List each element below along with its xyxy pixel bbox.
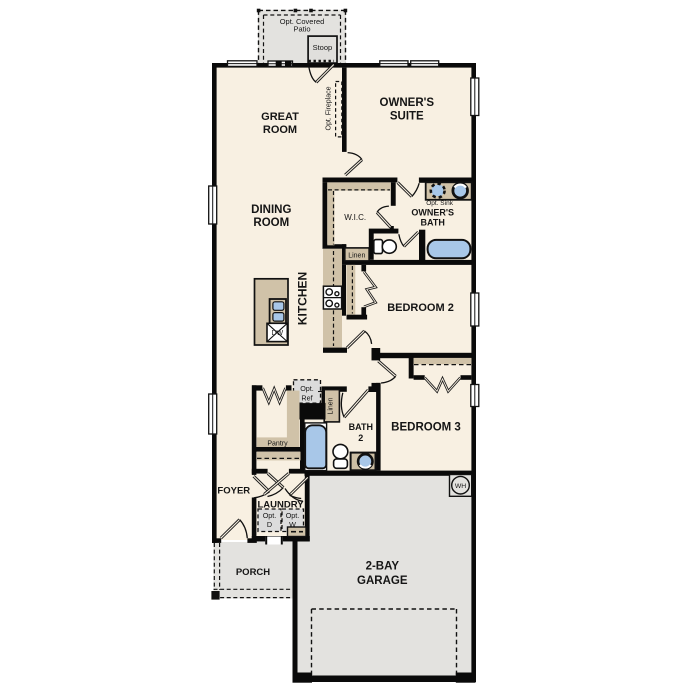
svg-text:Opt.: Opt. [263, 511, 277, 520]
svg-text:W.I.C.: W.I.C. [344, 213, 366, 222]
svg-text:D: D [267, 520, 272, 529]
svg-text:BATH: BATH [349, 422, 373, 432]
svg-text:OWNER'S: OWNER'S [411, 208, 454, 218]
svg-text:Opt. Fireplace: Opt. Fireplace [326, 86, 333, 130]
svg-text:GREAT: GREAT [261, 111, 299, 123]
svg-text:Linen: Linen [328, 397, 335, 414]
svg-text:2: 2 [358, 433, 363, 443]
svg-text:OWNER'S: OWNER'S [380, 97, 435, 109]
svg-text:Ref: Ref [301, 393, 312, 402]
svg-text:Opt. Sink: Opt. Sink [426, 200, 453, 207]
svg-text:Stoop: Stoop [313, 43, 333, 52]
svg-text:FOYER: FOYER [217, 485, 250, 496]
svg-text:KITCHEN: KITCHEN [296, 272, 310, 325]
svg-text:SUITE: SUITE [390, 111, 424, 123]
svg-text:Linen: Linen [348, 252, 365, 259]
svg-text:Patio: Patio [293, 25, 310, 34]
svg-text:PORCH: PORCH [236, 567, 270, 578]
svg-text:ROOM: ROOM [263, 124, 297, 136]
svg-text:BATH: BATH [421, 218, 445, 228]
svg-text:DINING: DINING [251, 204, 291, 216]
svg-text:2-BAY: 2-BAY [366, 561, 400, 573]
svg-text:Opt.: Opt. [286, 511, 300, 520]
svg-text:DW: DW [271, 330, 283, 337]
svg-text:Pantry: Pantry [267, 441, 288, 448]
svg-text:WH: WH [455, 483, 466, 490]
svg-text:ROOM: ROOM [253, 217, 289, 229]
svg-text:BEDROOM 3: BEDROOM 3 [391, 421, 461, 433]
svg-text:GARAGE: GARAGE [357, 575, 408, 587]
svg-text:Opt.: Opt. [300, 384, 314, 393]
svg-text:BEDROOM 2: BEDROOM 2 [387, 302, 454, 314]
